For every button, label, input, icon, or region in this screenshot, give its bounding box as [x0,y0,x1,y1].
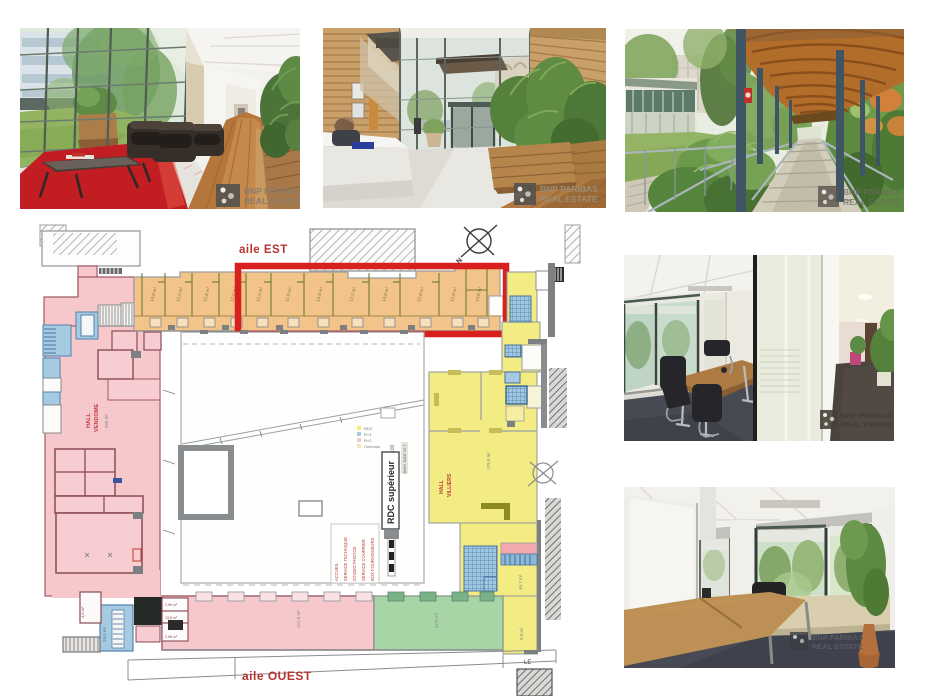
svg-text:ACCUEIL: ACCUEIL [334,562,339,581]
svg-text:aile EST: aile EST [239,244,288,256]
svg-text:BNP PARIBAS: BNP PARIBAS [841,411,892,420]
svg-text:4,6 m²: 4,6 m² [80,606,85,618]
svg-text:LE: LE [524,660,531,666]
svg-text:VILLIERS: VILLIERS [447,473,453,497]
svg-text:REAL ESTATE: REAL ESTATE [812,642,863,651]
svg-text:47,6 m²: 47,6 m² [434,612,439,628]
svg-text:9,0 m²: 9,0 m² [519,627,524,640]
svg-text:10,5 m²: 10,5 m² [102,626,107,642]
svg-text:REAL ESTATE: REAL ESTATE [244,196,302,206]
svg-text:13,8 m²: 13,8 m² [165,616,178,620]
svg-text:BNP PARIBAS: BNP PARIBAS [244,186,302,196]
svg-text:R+1: R+1 [364,432,372,437]
svg-text:BNP PARIBAS: BNP PARIBAS [812,633,863,642]
svg-text:RDC: RDC [364,426,373,431]
svg-text:RDC supérieur: RDC supérieur [386,460,396,524]
svg-text:HALL: HALL [86,413,92,428]
svg-text:585 m²: 585 m² [104,413,109,428]
svg-text:BOX FOURNISSEURS: BOX FOURNISSEURS [370,538,375,581]
svg-text:REAL ESTATE: REAL ESTATE [540,194,598,204]
svg-text:VENDOME: VENDOME [94,403,100,432]
svg-text:2,98 m²: 2,98 m² [165,635,178,639]
svg-text:151,8 m²: 151,8 m² [296,610,301,628]
svg-text:Commun: Commun [364,444,380,449]
svg-text:46,7 m²: 46,7 m² [518,574,523,590]
svg-text:HALL: HALL [439,479,445,494]
svg-text:SERVICE COURRIER: SERVICE COURRIER [361,539,366,581]
svg-text:REAL ESTATE: REAL ESTATE [841,420,892,429]
svg-text:aile OUEST: aile OUEST [242,669,312,683]
svg-text:2,96 m²: 2,96 m² [165,603,178,607]
svg-text:SERVICE TECHNIQUE: SERVICE TECHNIQUE [343,537,348,581]
svg-text:179,8 m²: 179,8 m² [486,452,491,470]
svg-text:STUDIO PHOTOS: STUDIO PHOTOS [352,546,357,581]
svg-text:BNP PARIBAS: BNP PARIBAS [843,187,901,197]
svg-text:BNP PARIBAS: BNP PARIBAS [540,184,598,194]
svg-text:JANV 2019 V2.7: JANV 2019 V2.7 [402,444,407,474]
svg-text:REAL ESTATE: REAL ESTATE [843,197,901,207]
svg-text:R+2: R+2 [364,438,372,443]
